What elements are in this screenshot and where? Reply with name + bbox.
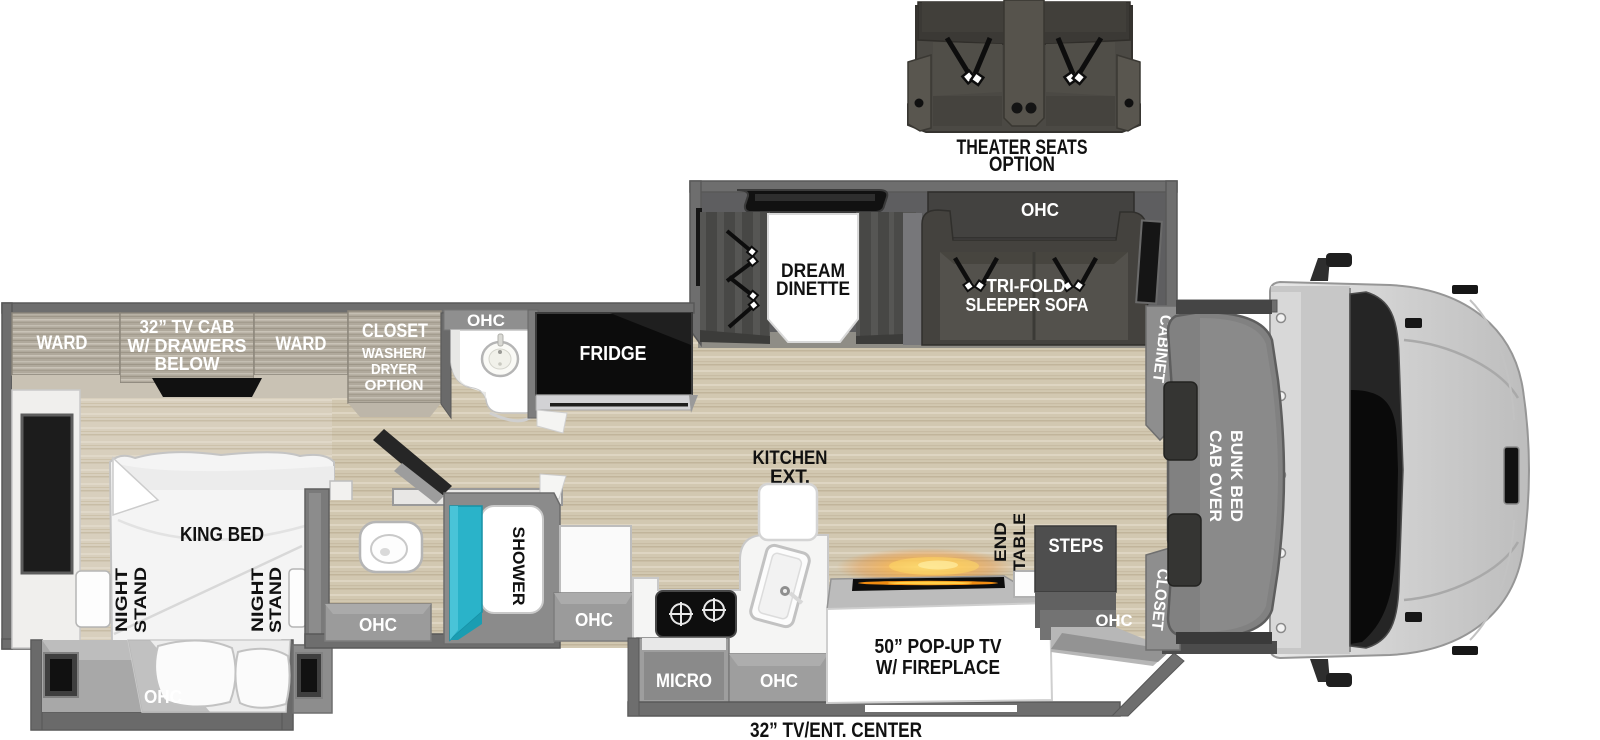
svg-text:32” TV CAB: 32” TV CAB [140, 317, 235, 337]
svg-text:OHC: OHC [575, 610, 613, 630]
svg-text:WASHER/: WASHER/ [362, 345, 427, 362]
svg-text:OHC: OHC [760, 671, 798, 691]
svg-text:WARD: WARD [276, 334, 327, 355]
svg-text:END: END [991, 522, 1010, 562]
svg-text:OHC: OHC [467, 311, 505, 330]
svg-text:50” POP-UP TV: 50” POP-UP TV [875, 636, 1003, 658]
svg-text:OPTION: OPTION [365, 377, 424, 394]
svg-text:OHC: OHC [144, 687, 182, 707]
svg-text:CLOSET: CLOSET [362, 321, 428, 342]
svg-text:NIGHT: NIGHT [248, 567, 267, 632]
svg-text:STEPS: STEPS [1049, 536, 1104, 557]
svg-text:BELOW: BELOW [155, 354, 220, 374]
svg-text:SHOWER: SHOWER [509, 527, 528, 606]
svg-text:BUNK BED: BUNK BED [1227, 430, 1246, 522]
svg-text:DRYER: DRYER [371, 361, 417, 378]
svg-text:SLEEPER SOFA: SLEEPER SOFA [966, 295, 1089, 315]
svg-text:W/ FIREPLACE: W/ FIREPLACE [876, 657, 1000, 679]
svg-text:WARD: WARD [37, 333, 88, 354]
svg-text:TRI-FOLD: TRI-FOLD [987, 276, 1066, 296]
svg-text:CAB OVER: CAB OVER [1206, 430, 1225, 522]
svg-text:TABLE: TABLE [1010, 513, 1029, 571]
svg-text:OHC: OHC [1021, 200, 1059, 220]
svg-text:W/ DRAWERS: W/ DRAWERS [128, 336, 247, 356]
svg-text:OHC: OHC [1096, 611, 1133, 630]
svg-text:STAND: STAND [266, 567, 285, 633]
svg-text:DINETTE: DINETTE [776, 279, 850, 300]
svg-text:OHC: OHC [359, 615, 397, 635]
svg-text:NIGHT: NIGHT [112, 567, 131, 632]
svg-text:STAND: STAND [131, 567, 150, 633]
svg-text:KITCHEN: KITCHEN [753, 448, 828, 469]
svg-text:MICRO: MICRO [656, 671, 712, 692]
svg-text:32” TV/ENT. CENTER: 32” TV/ENT. CENTER [750, 719, 922, 740]
svg-text:KING BED: KING BED [180, 524, 264, 546]
svg-text:OPTION: OPTION [989, 153, 1055, 176]
svg-text:FRIDGE: FRIDGE [580, 343, 647, 365]
